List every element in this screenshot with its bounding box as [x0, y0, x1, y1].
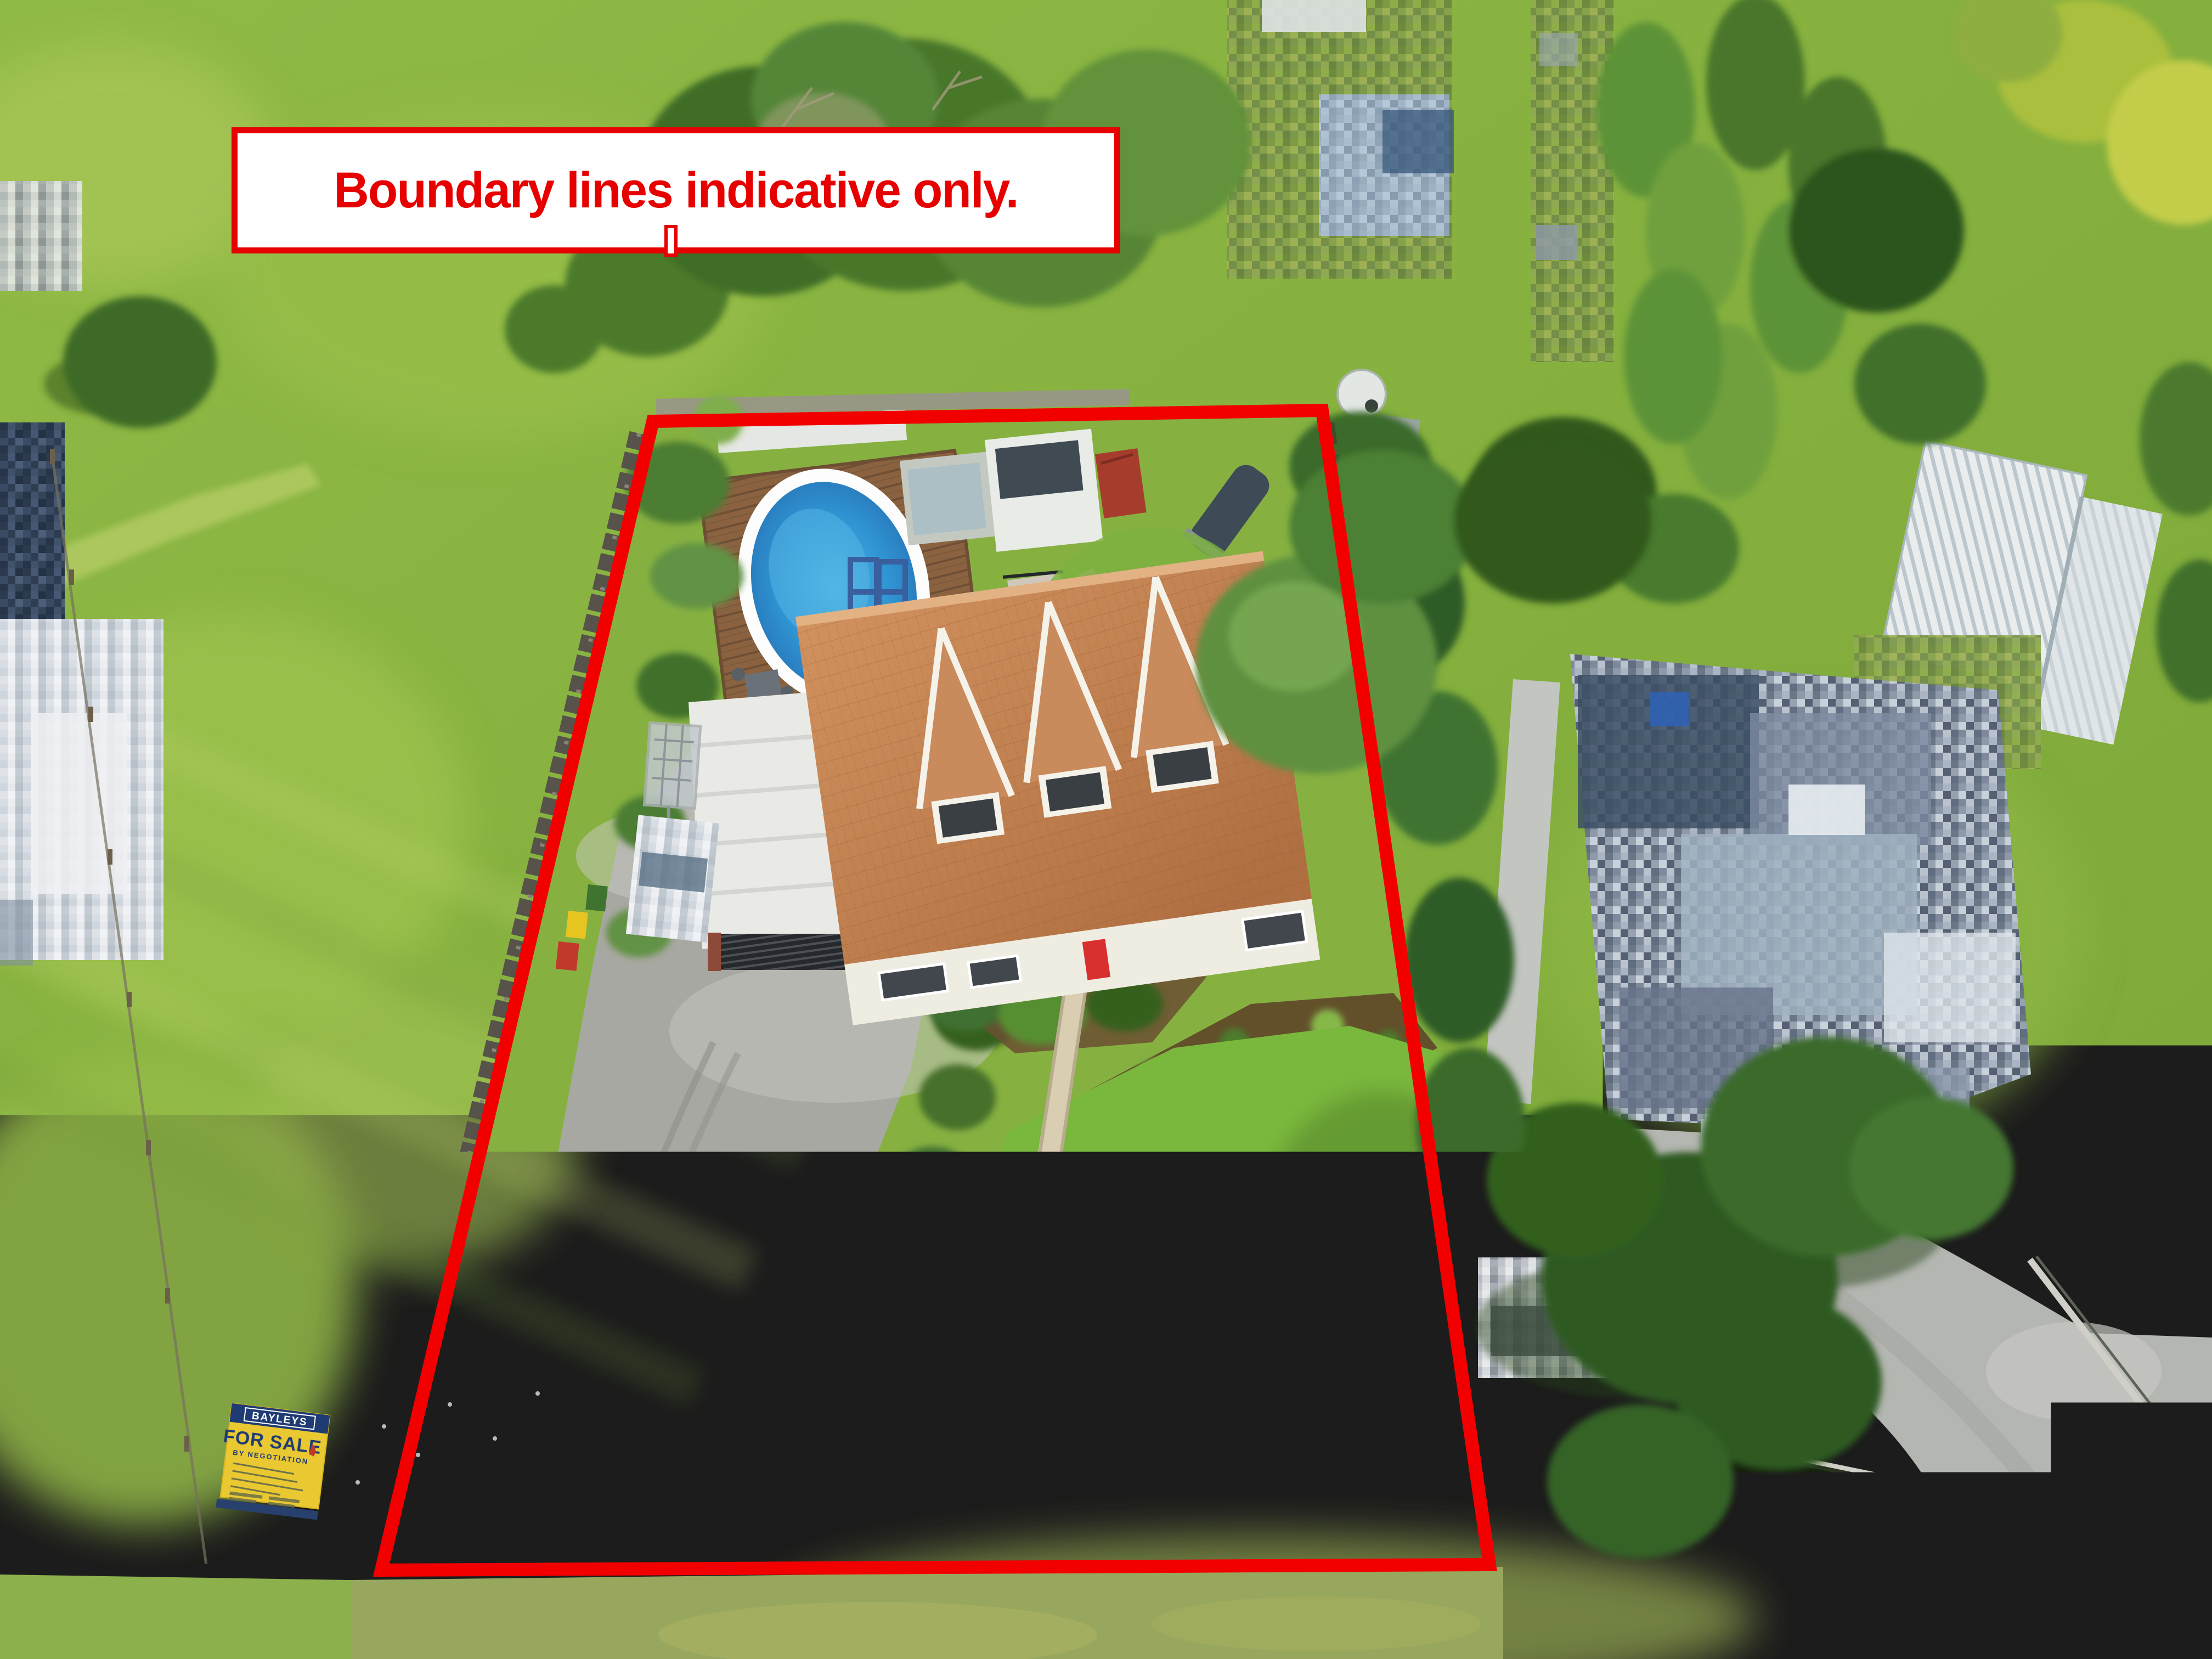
greenhouse	[907, 462, 986, 535]
aerial-photo: BAYLEYS FOR SALE BY NEGOTIATION Boundary…	[0, 0, 2212, 1659]
garage-door	[721, 934, 858, 970]
disclaimer-banner: Boundary lines indicative only.	[232, 127, 1120, 253]
pixelated-white-car	[626, 815, 719, 942]
banner-text: Boundary lines indicative only.	[334, 162, 1018, 219]
for-sale-sign: BAYLEYS FOR SALE BY NEGOTIATION	[215, 1403, 330, 1520]
road-verge	[0, 1567, 1503, 1659]
solar-panel	[995, 440, 1084, 499]
banner-cursor-glyph	[664, 225, 678, 257]
